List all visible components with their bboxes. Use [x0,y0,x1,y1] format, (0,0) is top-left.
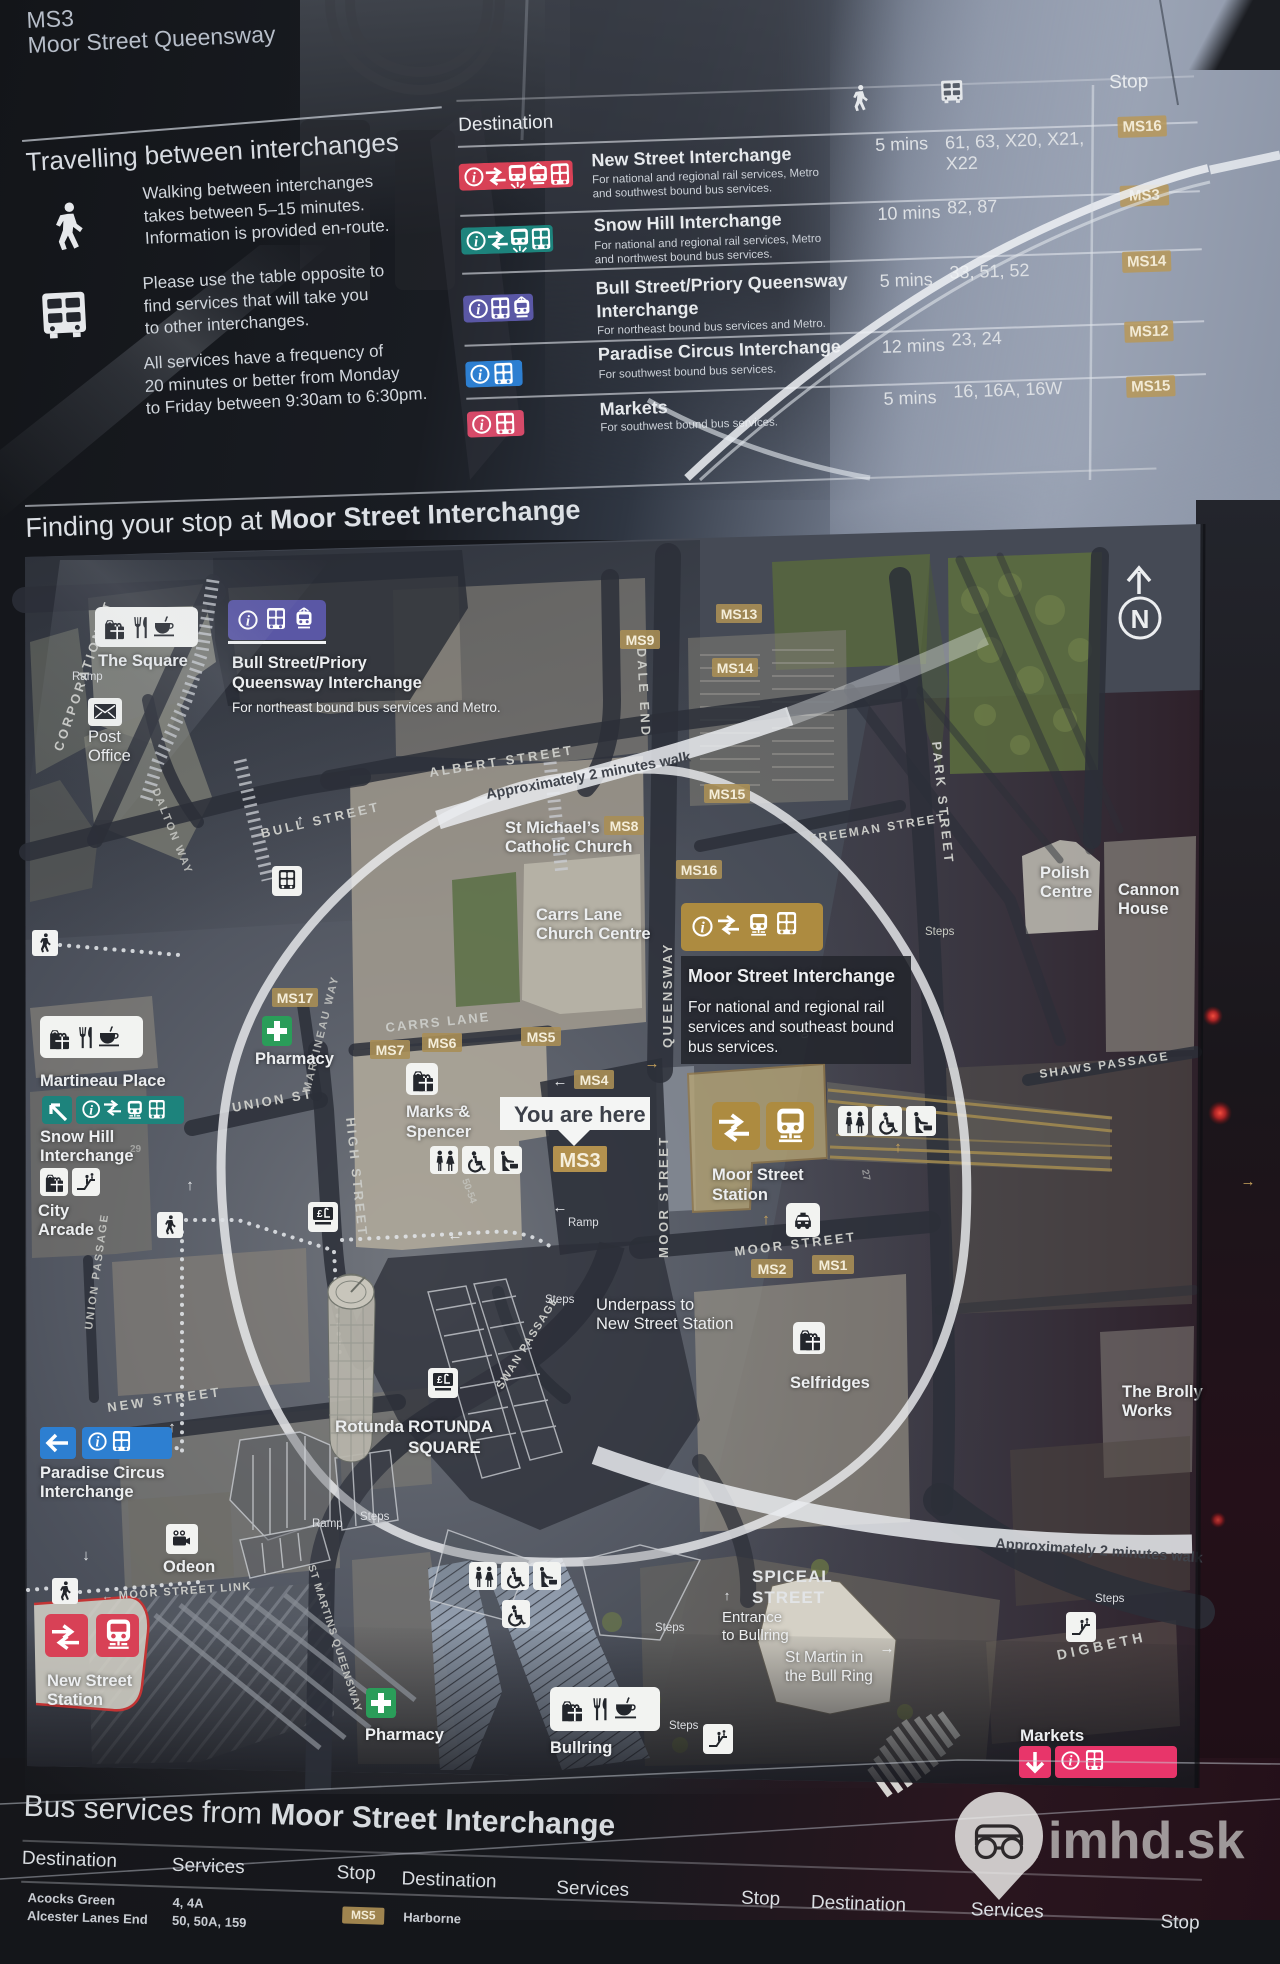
svg-text:imhd.sk: imhd.sk [1048,1812,1245,1870]
